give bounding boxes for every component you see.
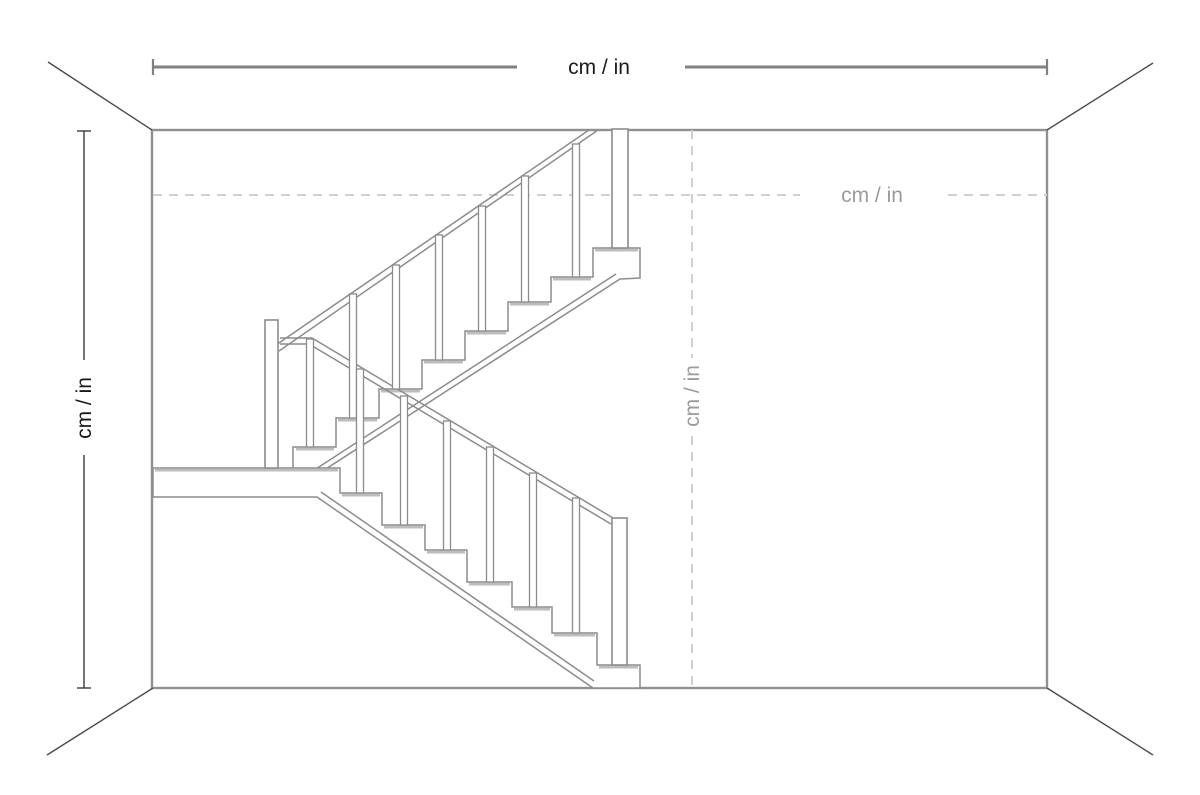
baluster	[350, 294, 357, 418]
room-elevation-canvas: cm / in cm / in cm / in cm / in	[0, 0, 1200, 795]
baluster	[436, 235, 443, 360]
bottom-newel-post	[612, 518, 627, 665]
stair-room-diagram: cm / in cm / in cm / in cm / in	[0, 0, 1200, 795]
guide-horizontal-label[interactable]: cm / in	[841, 184, 903, 207]
baluster	[444, 421, 451, 550]
back-wall-rect	[152, 130, 1047, 688]
baluster	[401, 396, 408, 525]
corner-line-bottom-left	[47, 688, 153, 755]
room-outline	[47, 62, 1153, 755]
room-width-label[interactable]: cm / in	[568, 56, 630, 79]
baluster	[530, 473, 537, 607]
corner-line-bottom-right	[1047, 688, 1153, 755]
height-dimension: cm / in	[73, 131, 96, 688]
corner-line-top-left	[48, 62, 152, 130]
width-dimension: cm / in	[153, 56, 1047, 79]
guide-vertical-label[interactable]: cm / in	[681, 365, 704, 427]
corner-line-top-right	[1047, 63, 1153, 130]
top-newel-post	[612, 129, 628, 248]
baluster	[307, 339, 314, 447]
baluster	[573, 144, 580, 277]
baluster	[487, 447, 494, 582]
baluster	[479, 206, 486, 331]
baluster	[573, 498, 580, 633]
landing-newel-post	[265, 320, 278, 468]
room-height-label[interactable]: cm / in	[73, 377, 96, 439]
baluster	[393, 265, 400, 389]
baluster	[357, 369, 364, 493]
baluster	[522, 176, 529, 302]
